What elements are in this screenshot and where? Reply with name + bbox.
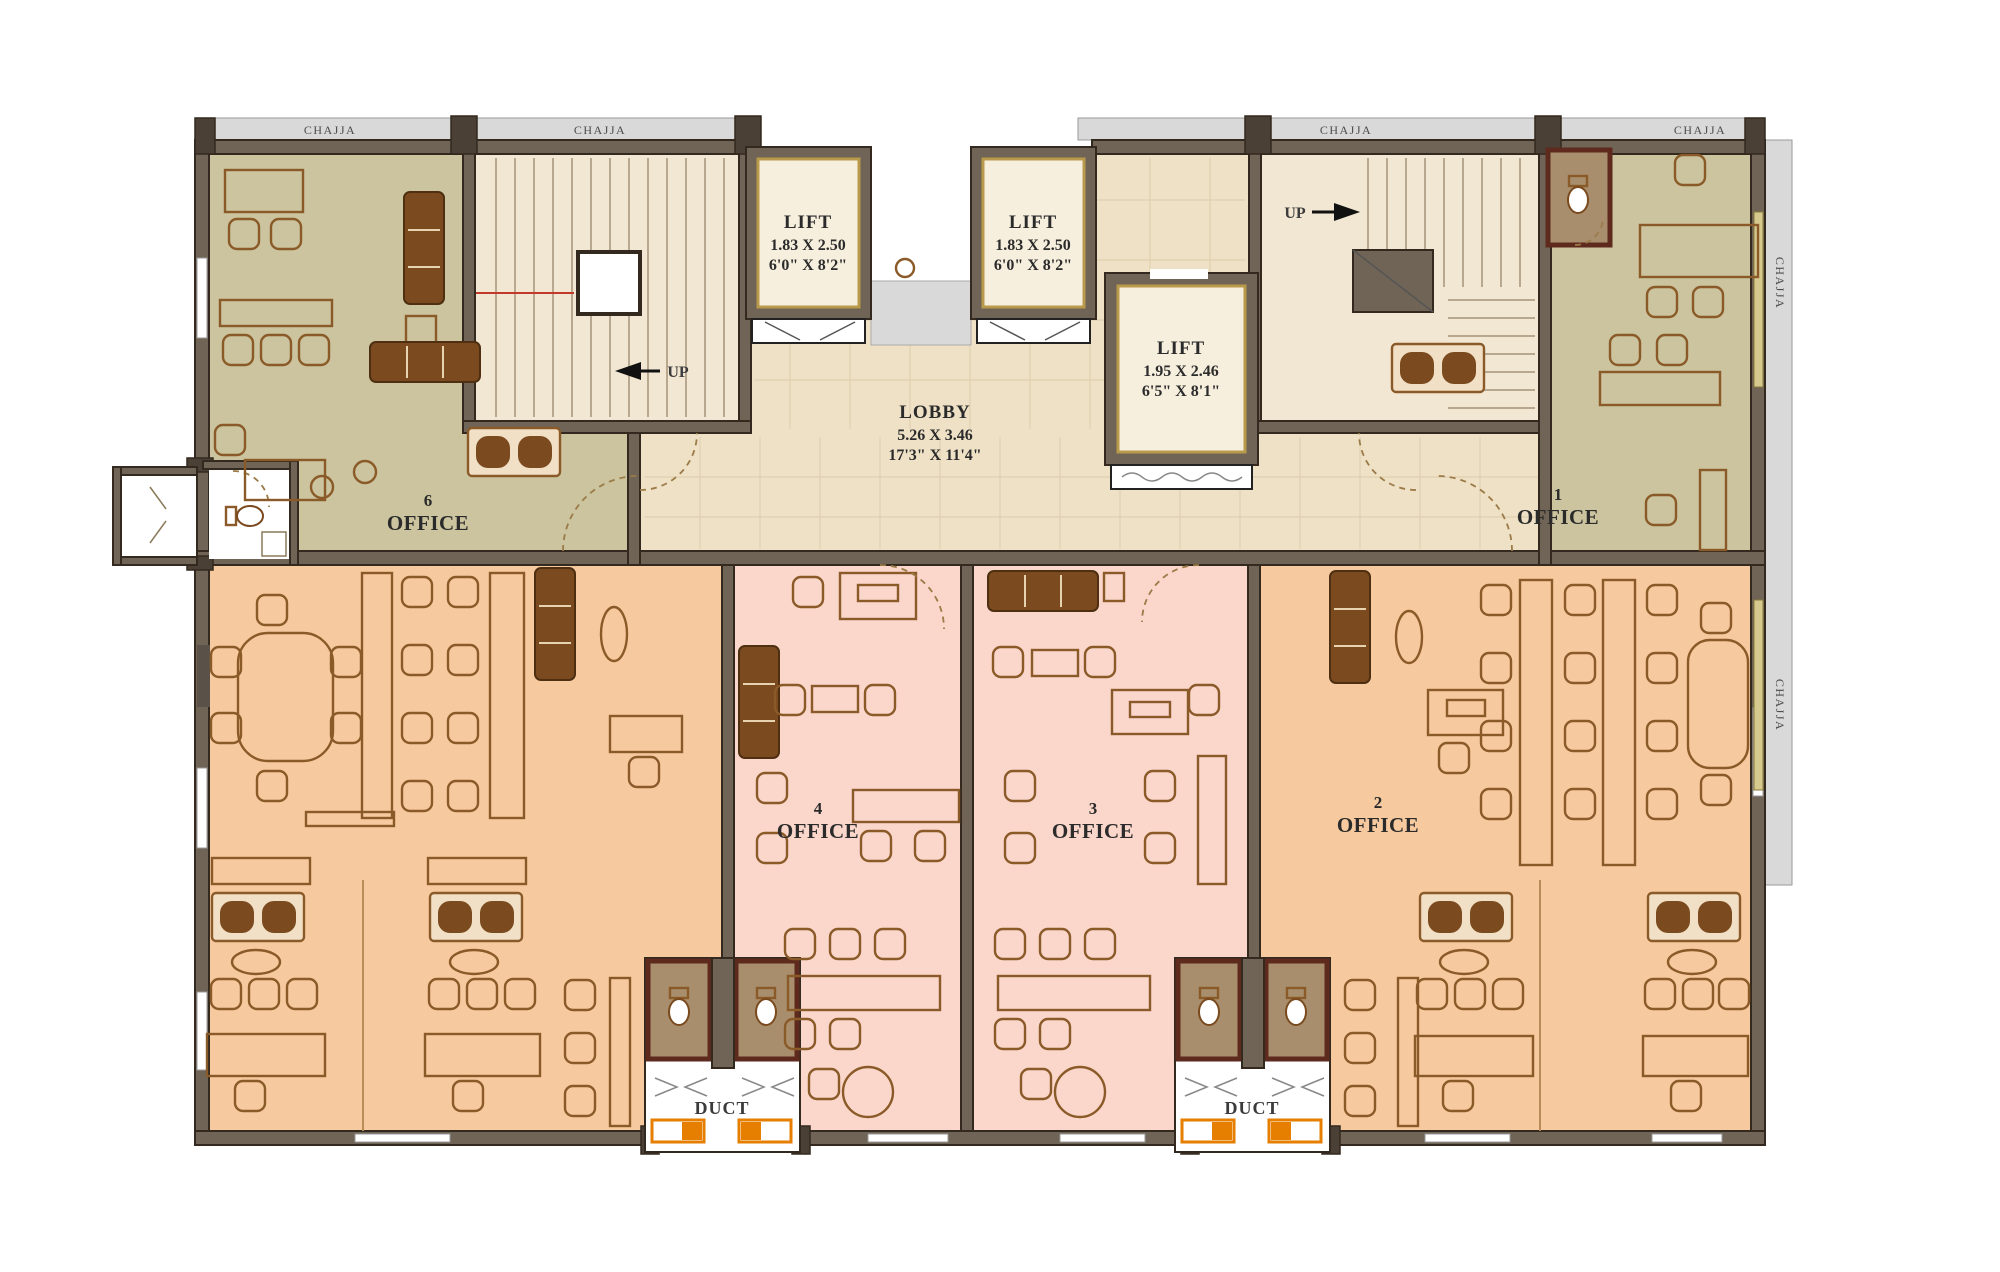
window-strip-right-lower: [1754, 600, 1763, 790]
chajja-label: CHAJJA: [1773, 679, 1787, 731]
lift-1: LIFT 1.83 X 2.50 6'0" X 8'2": [746, 147, 871, 343]
sofa: [1330, 571, 1370, 683]
duct-label-left: DUCT: [694, 1098, 749, 1118]
sofa-bed: [468, 428, 560, 476]
chajja-label: CHAJJA: [1320, 123, 1372, 137]
sofa: [988, 571, 1098, 611]
chajja-label: CHAJJA: [574, 123, 626, 137]
floor-plan-page: CHAJJA CHAJJA CHAJJA CHAJJA CHAJJA CHAJJ…: [0, 0, 2000, 1272]
chajja-label: CHAJJA: [304, 123, 356, 137]
sofa: [535, 568, 575, 680]
lobby-size-ft: 17'3" X 11'4": [888, 447, 981, 464]
lift-2: LIFT 1.83 X 2.50 6'0" X 8'2": [971, 147, 1096, 343]
duct-right: DUCT: [1175, 958, 1330, 1152]
office-6-number: 6: [424, 491, 433, 510]
sofa: [404, 192, 444, 304]
lift-1-size-ft: 6'0" X 8'2": [769, 257, 847, 274]
sofa: [370, 342, 480, 382]
lift-2-name: LIFT: [1009, 212, 1057, 233]
lift-2-size-m: 1.83 X 2.50: [995, 237, 1071, 254]
sofa-bed-lobby-right: [1392, 344, 1484, 392]
duct-left: DUCT: [645, 958, 800, 1152]
chajja-band-top-right: [1078, 118, 1751, 140]
lobby-name: LOBBY: [899, 402, 971, 423]
up-label-left: UP: [667, 364, 689, 381]
sofa-bed: [430, 893, 522, 941]
staircase-left: UP: [475, 154, 739, 421]
office-1-label: OFFICE: [1517, 505, 1599, 529]
chajja-label: CHAJJA: [1773, 257, 1787, 309]
entrance-recess: [871, 115, 971, 345]
office-4-label: OFFICE: [777, 819, 859, 843]
chajja-band-top: CHAJJA CHAJJA CHAJJA CHAJJA: [209, 118, 1751, 140]
chajja-band-right-strip: [1765, 140, 1792, 885]
lobby-passage: [640, 433, 1551, 551]
office-4-number: 4: [814, 799, 823, 818]
sofa-bed: [1648, 893, 1740, 941]
office-2-number: 2: [1374, 793, 1383, 812]
office-1-number: 1: [1554, 485, 1563, 504]
lift-3-name: LIFT: [1157, 338, 1205, 359]
lift-2-size-ft: 6'0" X 8'2": [994, 257, 1072, 274]
duct-label-right: DUCT: [1224, 1098, 1279, 1118]
up-label-right: UP: [1284, 205, 1306, 222]
floor-plan-drawing: CHAJJA CHAJJA CHAJJA CHAJJA CHAJJA CHAJJ…: [0, 0, 2000, 1272]
office-3-number: 3: [1089, 799, 1098, 818]
lift-3-size-ft: 6'5" X 8'1": [1142, 383, 1220, 400]
lift-3: LIFT 1.95 X 2.46 6'5" X 8'1": [1105, 269, 1258, 489]
stair-shaft-left: [578, 252, 640, 314]
staircase-right: UP: [1261, 154, 1539, 421]
sofa-bed: [1420, 893, 1512, 941]
lift-3-size-m: 1.95 X 2.46: [1143, 363, 1219, 380]
office-6-label: OFFICE: [387, 511, 469, 535]
office-2-label: OFFICE: [1337, 813, 1419, 837]
wall-board: [197, 645, 210, 707]
sofa-bed: [212, 893, 304, 941]
chajja-label: CHAJJA: [1674, 123, 1726, 137]
sofa: [739, 646, 779, 758]
lobby-size-m: 5.26 X 3.46: [897, 427, 973, 444]
lift-1-size-m: 1.83 X 2.50: [770, 237, 846, 254]
office-3-label: OFFICE: [1052, 819, 1134, 843]
chajja-band-right: CHAJJA CHAJJA: [1765, 140, 1792, 885]
lift-1-name: LIFT: [784, 212, 832, 233]
